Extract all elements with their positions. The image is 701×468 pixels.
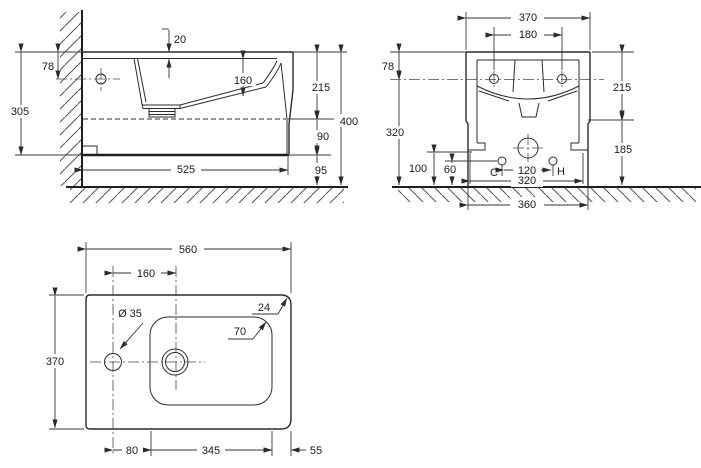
front-dim-215: 215 [613,82,631,94]
front-dim-320b: 320 [518,175,536,187]
plan-dim-80: 80 [126,445,138,457]
floor-hatching [398,188,696,202]
side-dim-95: 95 [315,165,327,177]
radius-24-label: 24 [258,302,270,314]
technical-drawing: 20 78 305 160 525 215 90 95 400 [0,0,701,468]
side-dim-525: 525 [177,164,195,176]
front-dim-60: 60 [444,164,456,176]
radius-70-label: 70 [234,326,246,338]
side-dim-20: 20 [174,34,186,46]
side-dim-400: 400 [340,116,358,128]
side-dim-215: 215 [312,82,330,94]
floor-hatching [70,188,344,203]
side-dim-78: 78 [42,61,54,73]
side-dim-305: 305 [11,106,29,118]
side-dim-90: 90 [317,131,329,143]
wall-hatching [60,12,82,186]
plan-dim-345: 345 [202,445,220,457]
tap-hole-diameter-label: Ø 35 [118,308,142,320]
cold-label: C [490,167,498,179]
plan-dim-55: 55 [310,445,322,457]
front-dim-78: 78 [382,61,394,73]
front-dim-360: 360 [518,199,536,211]
front-dim-320: 320 [386,127,404,139]
front-dim-180: 180 [519,29,537,41]
front-dim-370: 370 [519,12,537,24]
side-dim-160: 160 [234,75,252,87]
hot-label: H [557,166,565,178]
plan-dim-160: 160 [137,268,155,280]
page-background [0,0,701,468]
plan-dim-560: 560 [179,244,197,256]
front-dim-100: 100 [409,163,427,175]
plan-dim-370: 370 [46,356,64,368]
front-dim-185: 185 [614,144,632,156]
